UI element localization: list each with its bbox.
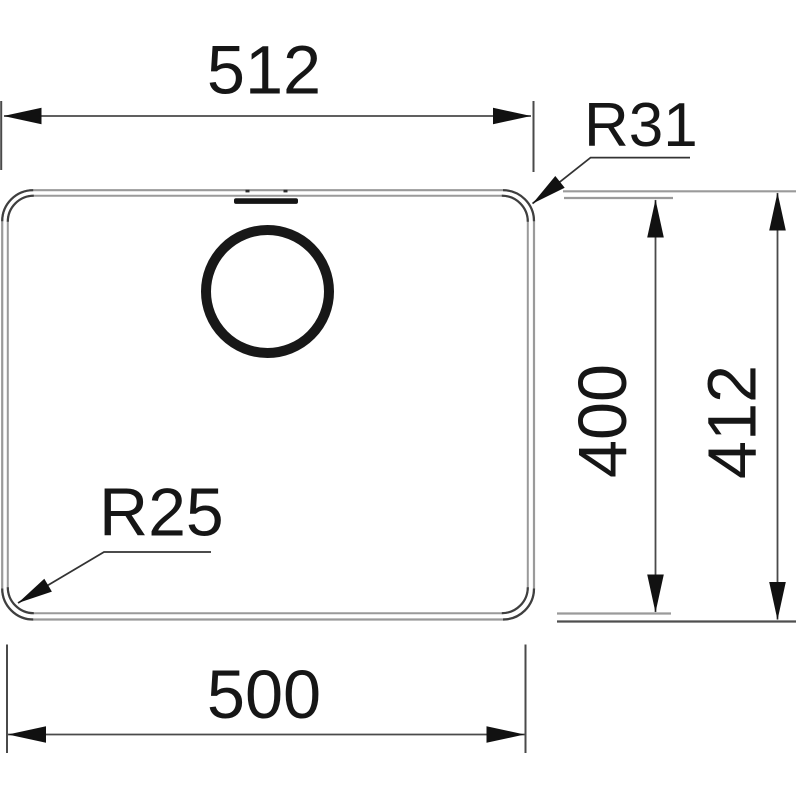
svg-text:R25: R25 xyxy=(99,475,224,551)
svg-text:400: 400 xyxy=(564,364,641,478)
svg-text:512: 512 xyxy=(207,32,321,109)
svg-text:R31: R31 xyxy=(584,91,698,160)
svg-text:412: 412 xyxy=(694,365,771,479)
svg-text:500: 500 xyxy=(207,656,321,733)
